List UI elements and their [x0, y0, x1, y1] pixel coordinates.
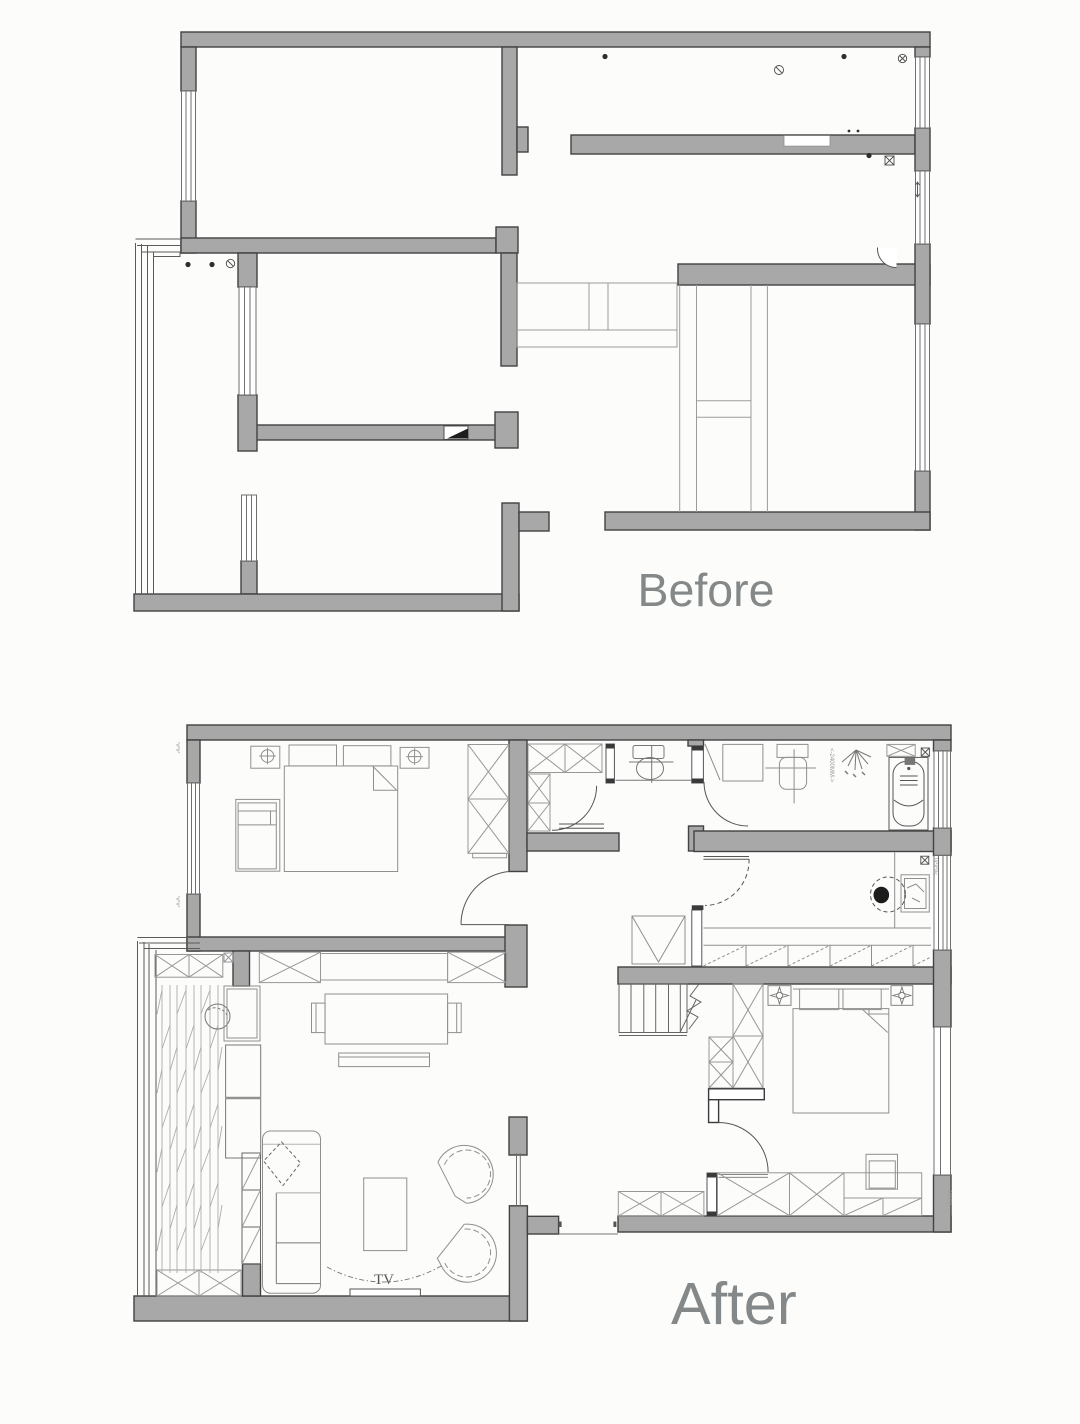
svg-text:<-2400MM->: <-2400MM->: [828, 748, 834, 783]
svg-text:After: After: [671, 1270, 797, 1337]
svg-text:*#*#*: *#*#*: [174, 896, 180, 907]
svg-text:1#*#*#: 1#*#*#: [946, 1190, 952, 1205]
svg-text:*#*#*: *#*#*: [174, 742, 180, 753]
svg-text:Before: Before: [638, 564, 775, 616]
svg-text:TV: TV: [374, 1272, 394, 1288]
svg-text:1#*#*#<: 1#*#*#<: [932, 857, 938, 875]
